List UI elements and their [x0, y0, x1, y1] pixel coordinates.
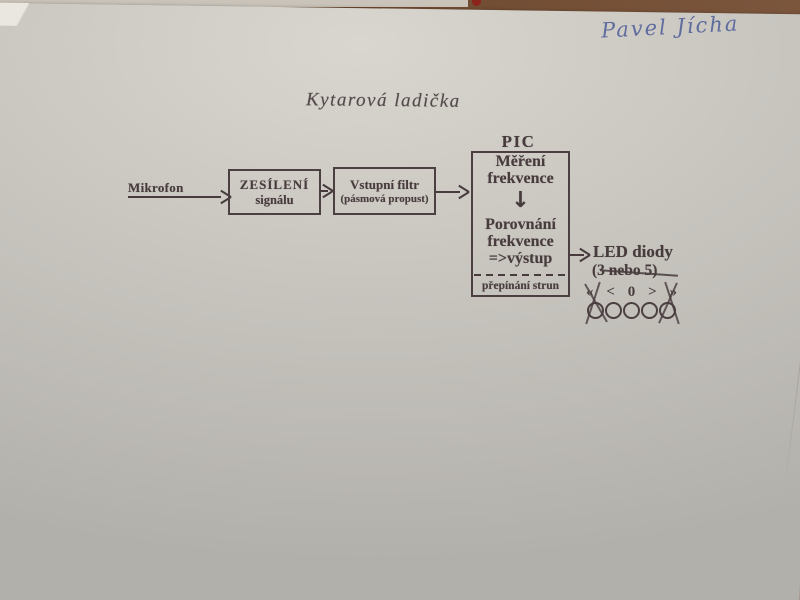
led-circle	[605, 302, 622, 319]
amplifier-box-line1: ZESÍLENÍ	[230, 177, 319, 193]
down-arrow-icon: ↓	[511, 190, 531, 214]
diagram-title: Kytarová ladička	[306, 89, 461, 113]
led-symbols-row: « < 0 > »	[586, 284, 677, 301]
amplifier-box: ZESÍLENÍ signálu	[228, 169, 321, 215]
amplifier-box-line2: signálu	[230, 193, 319, 208]
filter-box: Vstupní filtr (pásmová propust)	[333, 167, 436, 215]
led-symbol-sharp-icon: >	[648, 284, 657, 301]
pic-measure-line1: Měření	[473, 153, 568, 170]
diagram-layer: Pavel Jícha Kytarová ladička Mikrofon ZE…	[0, 0, 800, 600]
pic-measure-line2: frekvence	[473, 170, 568, 187]
pic-compare-line1: Porovnání	[473, 216, 568, 233]
led-symbol-flat-icon: <	[606, 284, 615, 301]
mikrofon-label: Mikrofon	[128, 180, 184, 196]
pic-label: PIC	[471, 132, 566, 152]
led-circle	[641, 302, 658, 319]
pic-box: Měření frekvence ↓ Porovnání frekvence =…	[471, 151, 570, 297]
pic-dashed-divider	[474, 274, 567, 276]
pic-to-led-arrow-head-icon	[578, 248, 590, 262]
led-count-suffix: )	[652, 262, 657, 279]
filter-box-line1: Vstupní filtr	[335, 177, 434, 193]
filter-box-line2: (pásmová propust)	[335, 193, 434, 205]
handwritten-name: Pavel Jícha	[600, 11, 739, 42]
input-arrow-line	[128, 196, 221, 198]
photo-frame: Pavel Jícha Kytarová ladička Mikrofon ZE…	[0, 0, 800, 600]
led-circle	[623, 302, 640, 319]
amp-to-filter-arrow-head-icon	[321, 184, 333, 198]
pic-footer: přepínání strun	[473, 280, 568, 292]
led-label: LED diody	[593, 242, 673, 262]
pic-compare-line2: frekvence	[473, 233, 568, 250]
pic-output-line: =>výstup	[473, 250, 568, 267]
led-symbol-in-tune-icon: 0	[628, 284, 636, 301]
filter-to-pic-arrow-head-icon	[457, 185, 469, 199]
